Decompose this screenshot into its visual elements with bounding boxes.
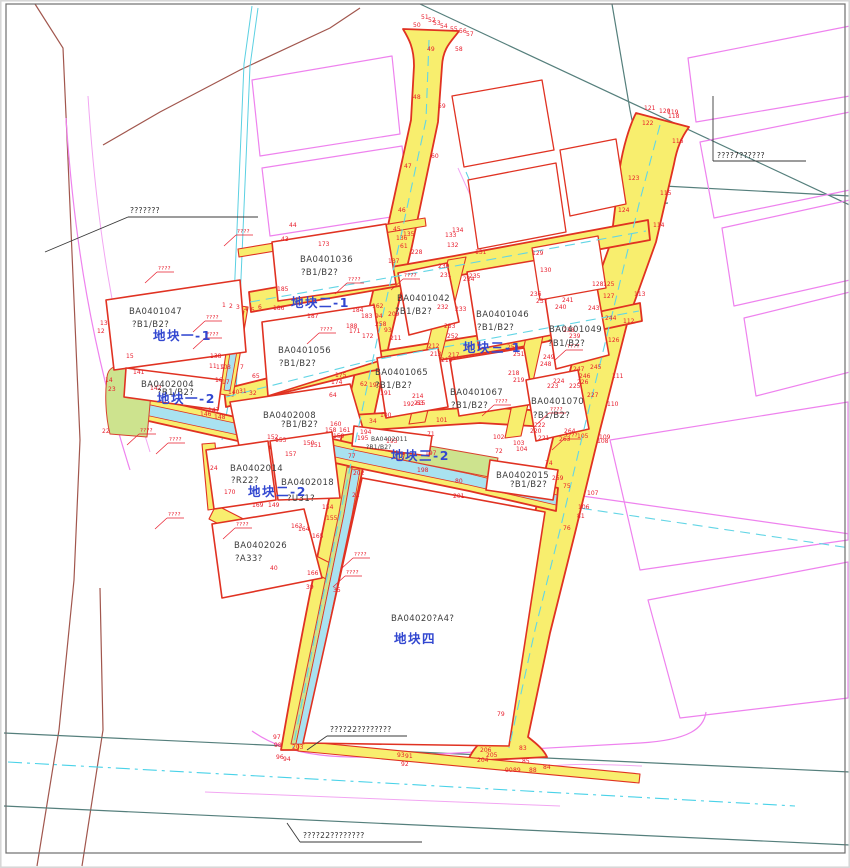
survey-point-number: 75 [563,483,571,490]
survey-point-number: 9 [221,364,225,371]
parcel-use-code-label: ?B1/B2? [279,359,316,369]
survey-point-number: 3 [236,304,240,311]
survey-point-number: 130 [540,267,552,274]
red-annotation-leader [224,235,236,246]
parcel-use-code-label: ?B1/B2? [366,444,392,451]
survey-point-number: 97 [273,734,281,741]
survey-point-number: 185 [277,286,289,293]
survey-point-number: 59 [438,103,446,110]
survey-point-number: 76 [563,525,571,532]
survey-point-number: 84 [543,764,551,771]
surrounding-parcel [722,200,850,306]
survey-point-number: 90 [505,767,513,774]
parcel-use-code-label: ?B1/B2? [375,381,412,391]
survey-point-number: 74 [545,460,553,467]
survey-point-number: 147 [208,407,220,414]
parcel-use-code-label: ?A33? [235,554,263,564]
survey-point-number: 165 [312,533,324,540]
survey-point-number: 21 [352,492,360,499]
survey-point-number: 77 [348,453,356,460]
survey-point-number: 132 [447,242,459,249]
survey-point-number: 22 [102,428,110,435]
red-annotation-leader [145,272,157,283]
survey-point-number: 138 [210,353,222,360]
survey-point-number: 259 [552,475,564,482]
survey-point-number: 39 [306,584,314,591]
survey-point-number: 88 [529,767,537,774]
parcel-id-label: BA0401049 [549,325,602,335]
survey-point-number: 226 [577,379,589,386]
survey-point-number: 65 [252,373,260,380]
survey-point-number: 115 [660,190,672,197]
survey-point-number: 48 [413,94,421,101]
survey-point-number: 104 [516,446,528,453]
survey-point-number: 98 [274,742,282,749]
survey-point-number: 94 [375,313,383,320]
survey-point-number: 170 [224,489,236,496]
survey-point-number: 108 [597,438,609,445]
existing-road-south-2 [4,806,850,845]
survey-point-number: 171 [349,328,361,335]
surrounding-parcel [252,56,400,156]
parcel-id-label: BA0401036 [300,255,353,265]
survey-point-number: 101 [436,417,448,424]
survey-point-number: 154 [322,504,334,511]
survey-point-number: 223 [547,383,559,390]
survey-point-number: 79 [497,711,505,718]
survey-point-number: 81 [577,513,585,520]
survey-point-number: 14 [105,377,113,384]
survey-point-number: 205 [486,752,498,759]
parcel-id-label: BA0401056 [278,346,331,356]
boundary-line-southwest [82,588,103,866]
red-annotation-mark: ???? [346,570,359,576]
survey-point-number: 64 [329,392,337,399]
survey-point-number: 174 [331,379,343,386]
survey-point-number: 211 [390,335,402,342]
survey-point-number: 258 [375,321,387,328]
survey-point-number: 35 [333,587,341,594]
block-name-label: 地块一-2 [157,391,216,406]
survey-point-number: 17 [222,379,230,386]
parcel-use-code-label: ?B1/B2? [510,480,547,490]
survey-point-number: 244 [605,315,617,322]
surrounding-parcel [610,402,848,570]
red-annotation-mark: ???? [158,266,171,272]
survey-point-number: 129 [532,250,544,257]
survey-point-number: 249 [543,354,555,361]
survey-point-number: 85 [522,758,530,765]
parcel-id-label: BA0401046 [476,310,529,320]
parcel-id-label: BA0402026 [234,541,287,551]
survey-point-number: 149 [268,502,280,509]
survey-point-number: 83 [519,745,527,752]
parcel-use-code-label: ?B1/B2? [548,339,585,349]
survey-point-number: 137 [388,258,400,265]
survey-point-number: 218 [508,370,520,377]
survey-point-number: 233 [455,306,467,313]
survey-point-number: 232 [437,304,449,311]
survey-point-number: 195 [357,435,369,442]
parcel-id-label: BA0402014 [230,464,283,474]
parcel-use-code-label: ?B1/B2? [477,323,514,333]
survey-point-number: 47 [404,163,412,170]
red-annotation-mark: ???? [320,327,333,333]
survey-point-number: 50 [413,22,421,29]
survey-point-number: 163 [291,523,303,530]
survey-point-number: 13 [100,320,108,327]
survey-point-number: 100 [380,412,392,419]
survey-point-number: 192 [403,401,415,408]
survey-point-number: 220 [530,428,542,435]
survey-point-number: 61 [400,243,408,250]
survey-point-number: 32 [249,390,257,397]
survey-point-number: 7 [240,364,244,371]
survey-point-number: 114 [653,222,665,229]
survey-point-number: 92 [401,761,409,768]
survey-point-number: 23 [108,386,116,393]
survey-point-number: 128 [592,281,604,288]
survey-point-number: 31 [239,388,247,395]
parcel-id-label: BA04020?A4? [391,614,454,624]
survey-point-number: 230 [438,263,450,270]
survey-point-number: 58 [455,46,463,53]
survey-point-number: 191 [380,390,392,397]
survey-point-number: 40 [270,565,278,572]
survey-point-number: 162 [372,303,384,310]
survey-point-number: 186 [273,305,285,312]
survey-point-number: 6 [258,304,262,311]
survey-point-number: 155 [326,515,338,522]
survey-point-number: 173 [318,241,330,248]
parcel-use-code-label: ?B1/B2? [451,401,488,411]
surrounding-parcel [648,562,848,718]
survey-point-number: 111 [612,373,624,380]
survey-point-number: 93 [397,752,405,759]
survey-point-number: 1 [222,302,226,309]
parcel-id-label: BA0401067 [450,388,503,398]
red-annotation-mark: ???? [354,552,367,558]
red-annotation-mark: ???? [206,315,219,321]
survey-point-number: 126 [608,337,620,344]
survey-point-number: 252 [447,333,459,340]
survey-point-number: 43 [281,236,289,243]
reserve-cell [560,139,626,216]
parcel-id-label: BA0401065 [375,368,428,378]
block-name-label: 地块二-2 [248,484,307,499]
survey-point-number: 107 [587,490,599,497]
survey-point-number: 93 [384,327,392,334]
survey-point-number: 125 [603,281,615,288]
survey-point-number: 110 [607,401,619,408]
plan-drawing-stage: 5051525354555657495848594760464561444317… [0,0,850,868]
block-name-label: 地块一-1 [153,328,212,343]
survey-point-number: 187 [307,313,319,320]
survey-point-number: 34 [369,418,377,425]
survey-point-number: 221 [538,435,550,442]
road-south-edge [298,741,640,783]
surrounding-line-south [205,792,560,806]
survey-point-number: 237 [536,298,548,305]
parcel-use-code-label: ?B1/B2? [533,411,570,421]
red-annotation-mark: ???? [168,512,181,518]
parcel-id-label: BA0402011 [371,436,408,443]
survey-point-number: 140 [228,389,240,396]
survey-point-number: 245 [590,364,602,371]
survey-point-number: 127 [603,293,615,300]
survey-point-number: 240 [555,304,567,311]
survey-point-number: 24 [210,465,218,472]
block-name-label: 地块三-2 [391,448,450,463]
survey-point-number: 198 [417,467,429,474]
survey-point-number: 175 [335,372,347,379]
survey-point-number: 219 [513,377,525,384]
red-annotation-mark: ???? [565,433,578,439]
map-note-text: ????22???????? [303,831,365,840]
boundary-line-northeast [103,8,360,145]
land-use-plan-canvas: 5051525354555657495848594760464561444317… [0,0,850,868]
survey-point-number: 215 [414,400,426,407]
survey-point-number: 49 [427,46,435,53]
survey-point-number: 124 [618,207,630,214]
survey-point-number: 152 [267,434,279,441]
survey-point-number: 60 [431,153,439,160]
survey-point-number: 151 [310,442,322,449]
map-note-text: ????7?????? [717,151,765,160]
survey-point-number: 212 [428,343,440,350]
survey-point-number: 159 [333,433,345,440]
red-annotation-leader [156,443,168,454]
survey-point-number: 71 [427,431,435,438]
survey-point-number: 253 [444,323,456,330]
survey-point-number: 118 [668,113,680,120]
map-note-text: ????22???????? [330,725,392,734]
survey-point-number: 5 [251,307,255,314]
block-name-label: 地块三-1 [463,340,522,355]
red-annotation-mark: ???? [140,428,153,434]
red-annotation-mark: ???? [169,437,182,443]
survey-point-number: 131 [475,249,487,256]
survey-point-number: 116 [672,138,684,145]
survey-point-number: 243 [588,305,600,312]
survey-point-number: 241 [562,297,574,304]
map-note-text: ??????? [130,206,160,215]
survey-point-number: 214 [412,393,424,400]
survey-point-number: 183 [361,313,373,320]
surrounding-parcel [688,26,850,122]
survey-point-number: 62 [360,381,368,388]
survey-point-number: 106 [578,504,590,511]
red-annotation-leader [155,518,167,529]
survey-point-number: 203 [292,744,304,751]
red-annotation-mark: ???? [404,273,417,279]
survey-point-number: 46 [398,207,406,214]
parcel-id-label: BA0401070 [531,397,584,407]
reserve-cell [468,163,566,249]
map-note-leader [287,823,300,842]
survey-point-number: 102 [493,434,505,441]
survey-point-number: 134 [452,227,464,234]
survey-point-number: 228 [411,249,423,256]
survey-point-number: 15 [126,353,134,360]
survey-point-number: 44 [289,222,297,229]
survey-point-number: 11 [209,363,217,370]
survey-point-number: 54 [440,23,448,30]
road-extension-east-centerline [566,506,850,548]
red-annotation-mark: ???? [495,399,508,405]
survey-point-number: 213 [430,351,442,358]
parcel-use-code-label: ?B1/B2? [301,268,338,278]
survey-point-number: 227 [587,392,599,399]
parcel-use-code-label: ?B1/B2? [281,420,318,430]
survey-point-number: 72 [495,448,503,455]
survey-point-number: 121 [644,105,656,112]
surrounding-parcel [744,292,850,396]
survey-point-number: 169 [252,502,264,509]
survey-point-number: 236 [530,291,542,298]
survey-point-number: 4 [244,306,248,313]
survey-point-number: 148 [214,414,226,421]
survey-point-number: 201 [453,493,465,500]
survey-point-number: 135 [403,231,415,238]
survey-point-number: 113 [634,291,646,298]
survey-point-number: 89 [513,767,521,774]
survey-point-number: 248 [540,361,552,368]
survey-point-number: 235 [469,273,481,280]
survey-point-number: 2 [229,303,233,310]
reserve-cell [452,80,554,167]
red-annotation-mark: ???? [237,229,250,235]
survey-point-number: 45 [393,226,401,233]
survey-point-number: 8 [227,364,231,371]
survey-point-number: 216 [441,357,453,364]
road-extension-east-edge [568,494,850,534]
survey-point-number: 247 [573,366,585,373]
survey-point-number: 202 [353,470,365,477]
parcel-id-label: BA0401042 [397,294,450,304]
map-note-leader [45,217,128,252]
survey-point-number: 112 [623,318,635,325]
survey-point-number: 94 [283,756,291,763]
survey-point-number: 166 [307,570,319,577]
block-name-label: 地块四 [394,631,436,646]
red-annotation-mark: ???? [348,277,361,283]
survey-point-number: 122 [642,120,654,127]
survey-point-number: 157 [285,451,297,458]
survey-point-number: 231 [440,272,452,279]
survey-point-number: 12 [97,328,105,335]
survey-point-number: 57 [466,31,474,38]
block-name-label: 地块二-1 [291,295,350,310]
surrounding-parcel [700,112,850,218]
parcel-id-label: BA0401047 [129,307,182,317]
survey-point-number: 91 [405,753,413,760]
survey-point-number: 172 [362,333,374,340]
survey-point-number: 141 [133,369,145,376]
parcel-use-code-label: ?B1/B2? [395,307,432,317]
survey-point-number: 55 [450,26,458,33]
survey-point-number: 123 [628,175,640,182]
survey-point-number: 80 [455,478,463,485]
red-annotation-mark: ???? [236,522,249,528]
